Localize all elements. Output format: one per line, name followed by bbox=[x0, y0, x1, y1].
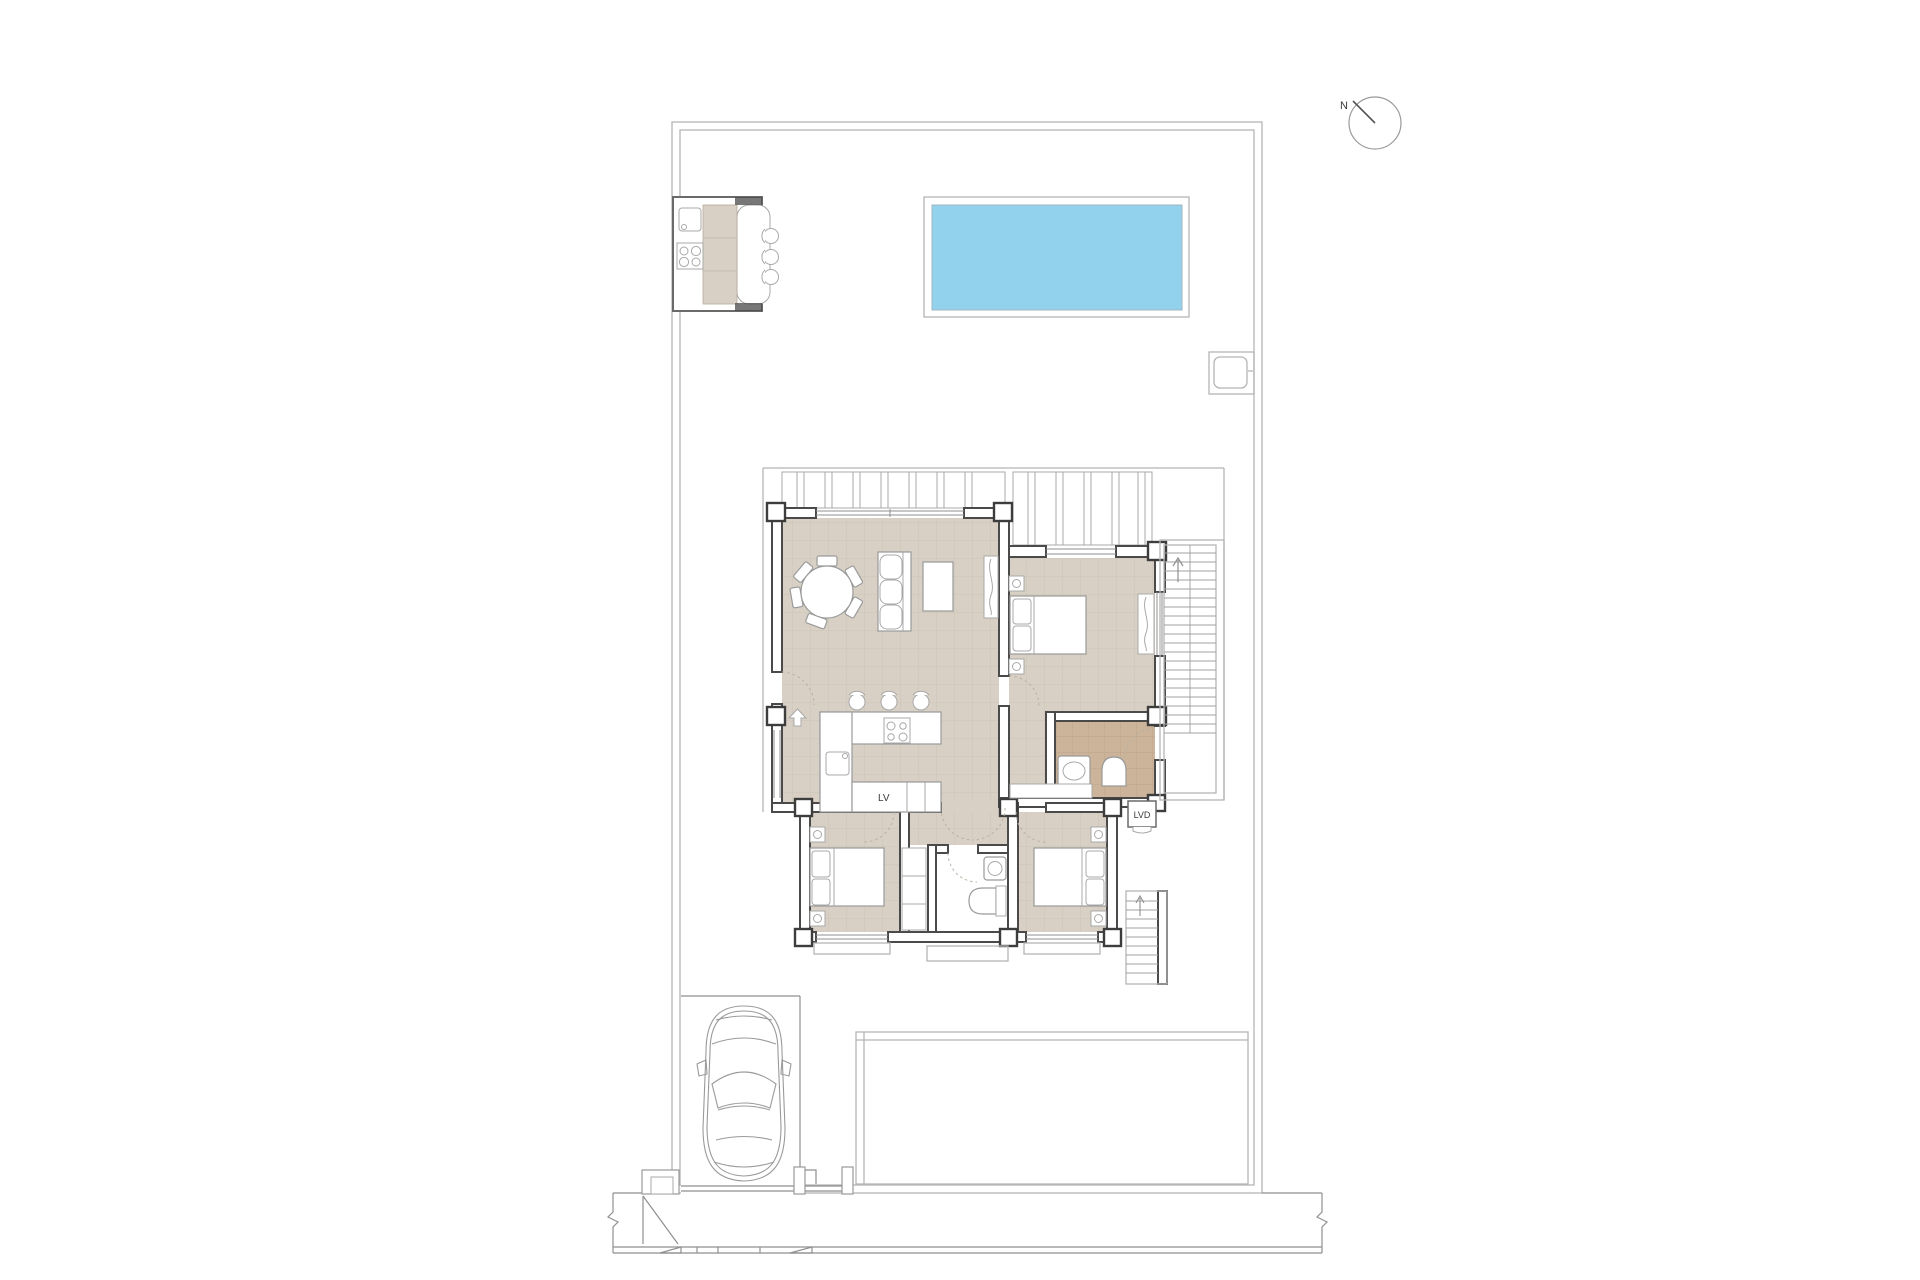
floor-plan-drawing: N bbox=[0, 0, 1920, 1280]
window-living-north bbox=[816, 509, 964, 517]
patio-slab bbox=[856, 1032, 1248, 1184]
bar-stools bbox=[762, 229, 779, 285]
pedestrian-gate bbox=[643, 1196, 678, 1244]
car-windshield bbox=[712, 1072, 776, 1108]
window-bedroom2-south bbox=[816, 935, 888, 939]
gate-pillar-right bbox=[842, 1167, 853, 1194]
car bbox=[697, 1006, 791, 1181]
outdoor-kitchen bbox=[673, 197, 779, 311]
pergola-slats-living bbox=[797, 472, 972, 508]
swimming-pool bbox=[924, 197, 1189, 317]
bed1-pillow2 bbox=[1013, 626, 1031, 651]
street-sidewalk bbox=[608, 1193, 1327, 1253]
gate-pillar-left-cap bbox=[651, 1177, 673, 1194]
curtain-bedroom1-east bbox=[1138, 594, 1154, 654]
pool-water bbox=[932, 205, 1182, 310]
gate-pillar-mid bbox=[794, 1167, 805, 1194]
hall-wardrobe bbox=[1010, 784, 1092, 798]
washer-box: LVD bbox=[1128, 801, 1156, 833]
street-break-right bbox=[1317, 1193, 1327, 1253]
coffee-table bbox=[923, 562, 953, 611]
stairs-lower-arrow bbox=[1136, 896, 1144, 916]
curtain-living-east bbox=[984, 556, 998, 618]
window-bedroom1-north bbox=[1046, 549, 1116, 554]
north-label: N bbox=[1340, 100, 1348, 112]
dishwasher-label: LV bbox=[878, 793, 890, 804]
window-bedroom3-south bbox=[1026, 935, 1098, 939]
kitchen-stools bbox=[849, 691, 929, 710]
car-rear-window bbox=[714, 1162, 774, 1167]
bath2-toilet bbox=[969, 888, 996, 914]
floor-plan-canvas: N bbox=[0, 0, 1920, 1280]
hall-closet bbox=[902, 848, 926, 930]
equipment-box bbox=[1209, 352, 1254, 394]
sidewalk-mark-left bbox=[660, 1247, 681, 1253]
north-compass: N bbox=[1340, 97, 1401, 149]
stairs-upper bbox=[1160, 540, 1224, 800]
kitchen-counter-top bbox=[703, 205, 737, 304]
sidewalk-mark-right bbox=[790, 1247, 812, 1253]
kitchen-counter-south bbox=[852, 782, 941, 812]
window-sills bbox=[814, 943, 1100, 961]
bath1-toilet bbox=[1102, 757, 1126, 786]
bathroom-2 bbox=[969, 857, 1006, 916]
washer-label: LVD bbox=[1134, 810, 1151, 820]
driveway bbox=[642, 996, 853, 1194]
pergola-slats-bedroom bbox=[1028, 472, 1145, 545]
street-break-left bbox=[608, 1193, 618, 1253]
bed1-pillow bbox=[1013, 599, 1031, 624]
corridor-floor bbox=[941, 800, 1008, 812]
sofa bbox=[878, 552, 911, 631]
